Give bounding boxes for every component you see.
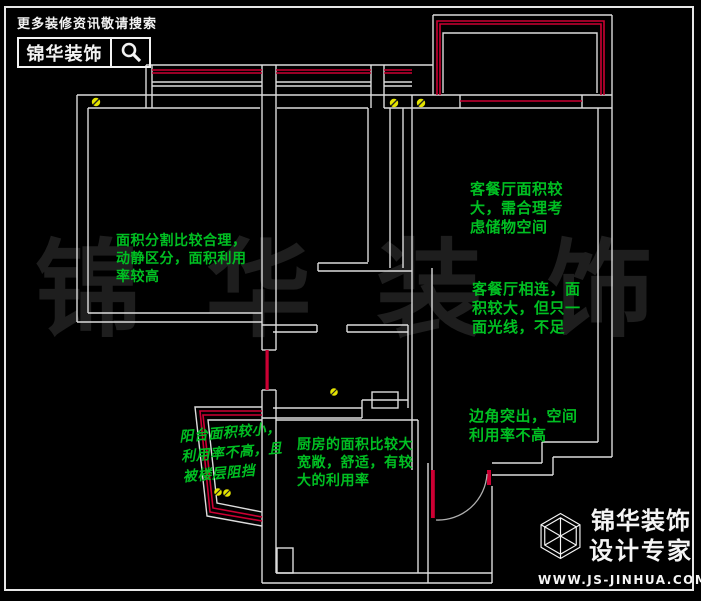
door-swing-arc — [436, 474, 487, 520]
annotation-corner: 边角突出，空间 利用率不高 — [469, 407, 578, 445]
header-search-hint: 更多装修资讯敬请搜索 锦华装饰 — [17, 13, 157, 68]
light-symbol — [330, 388, 338, 396]
search-icon — [118, 41, 144, 65]
annotation-living-light: 客餐厅相连，面 积较大，但只一 面光线，不足 — [472, 280, 581, 337]
search-icon-cell — [110, 39, 149, 66]
light-symbol — [92, 98, 100, 106]
light-symbol — [390, 99, 398, 107]
cube-logo-icon — [538, 503, 583, 569]
footer-brand-name: 锦华装饰 — [589, 506, 693, 536]
annotation-living-storage: 客餐厅面积较 大，需合理考 虑储物空间 — [470, 180, 563, 237]
light-symbol — [223, 489, 231, 497]
floorplan-page: 锦 华 装 饰 — [0, 0, 701, 601]
footer-website: WWW.JS-JINHUA.COM — [538, 573, 693, 587]
brand-search-box: 锦华装饰 — [17, 37, 151, 68]
annotation-kitchen: 厨房的面积比较大 宽敞，舒适，有较 大的利用率 — [297, 436, 413, 490]
brand-name: 锦华装饰 — [19, 40, 110, 66]
annotation-balcony: 阳台面积较小， 利用率不高，且 被楼层阻挡 — [179, 419, 285, 488]
search-tagline: 更多装修资讯敬请搜索 — [17, 13, 157, 32]
light-symbol — [214, 488, 222, 496]
door-leaves — [266, 350, 492, 518]
annotation-bedroom: 面积分割比较合理， 动静区分，面积利用 率较高 — [116, 232, 247, 286]
footer-logo-block: 锦华装饰 设计专家 WWW.JS-JINHUA.COM — [538, 503, 693, 587]
light-symbol — [417, 99, 425, 107]
footer-brand-slogan: 设计专家 — [589, 536, 693, 566]
